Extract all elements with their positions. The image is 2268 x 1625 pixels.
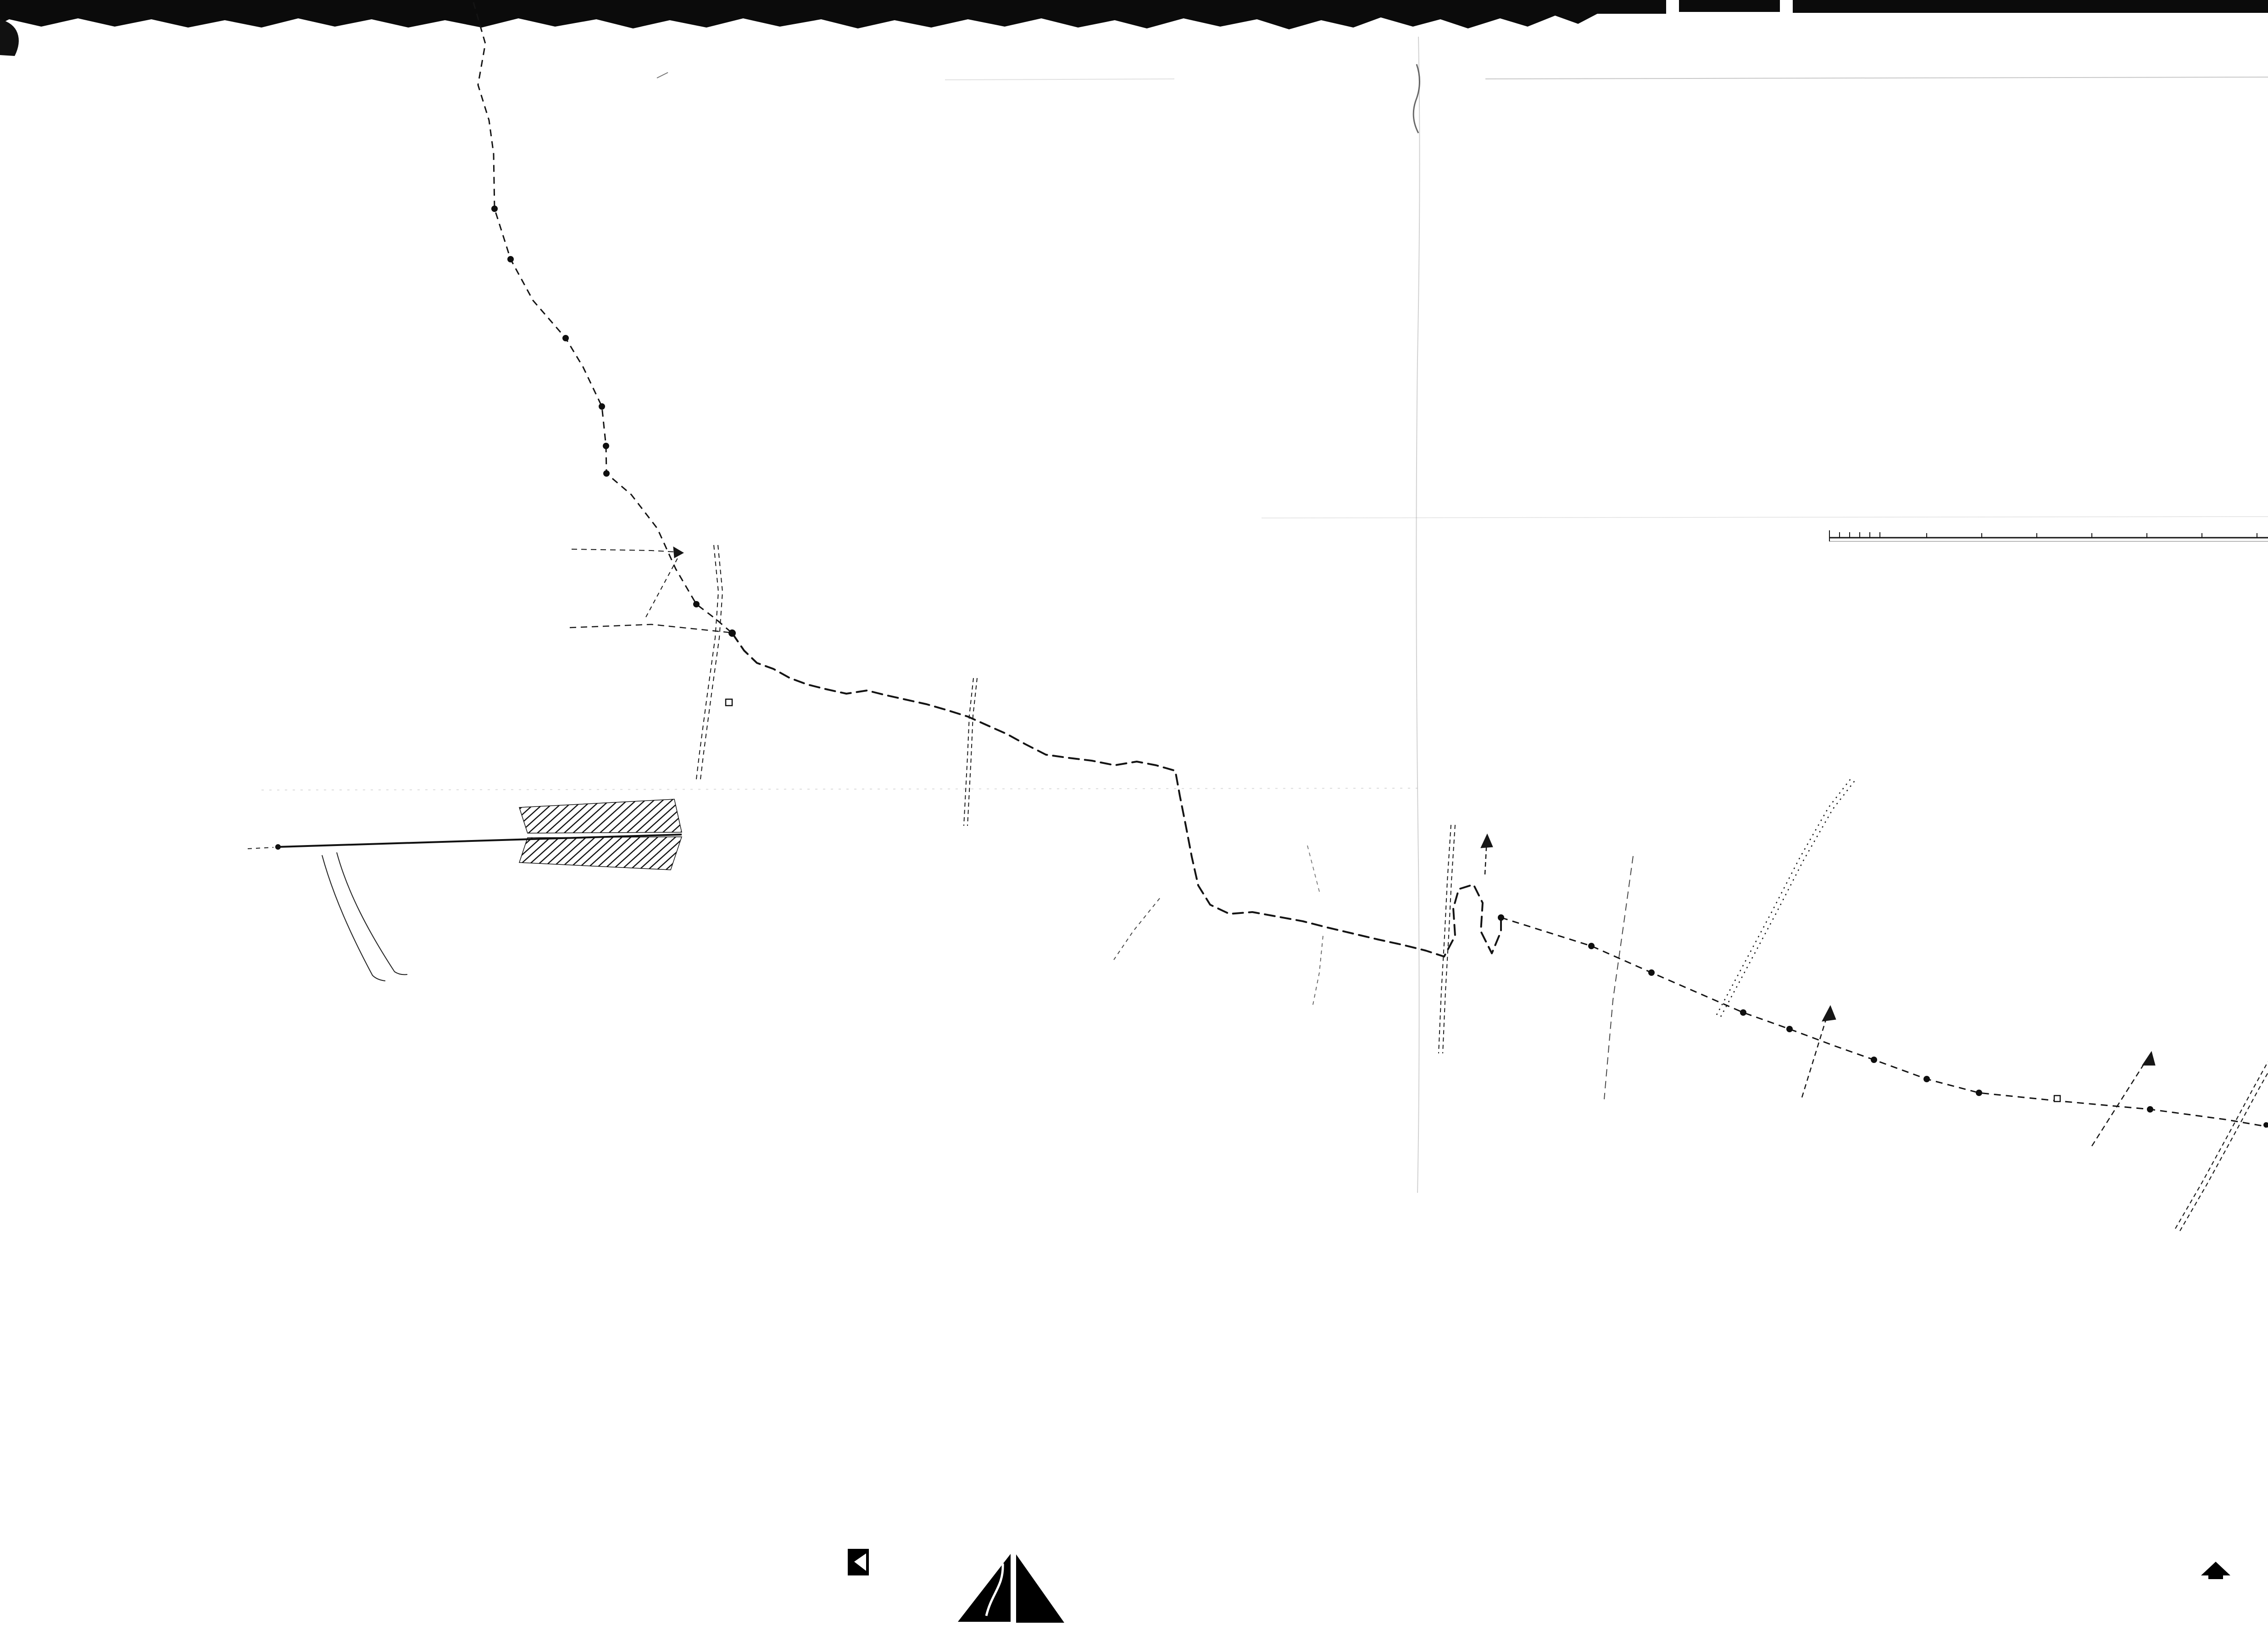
scanned-map-page	[0, 0, 2268, 1625]
backup-logo-icon	[847, 1548, 870, 1578]
backup-watermark	[847, 1548, 880, 1578]
map-label-layer	[0, 0, 2268, 1625]
